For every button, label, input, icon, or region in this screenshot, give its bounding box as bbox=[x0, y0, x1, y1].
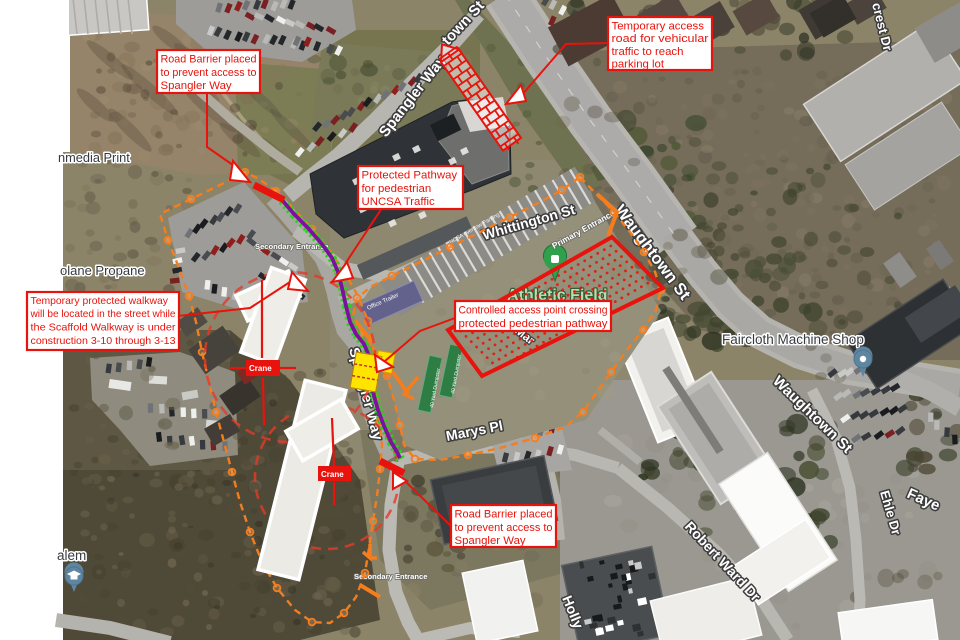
svg-text:Crane: Crane bbox=[321, 470, 344, 479]
svg-text:olane Propane: olane Propane bbox=[60, 263, 145, 278]
svg-text:Temporary access: Temporary access bbox=[612, 21, 705, 33]
svg-text:Crane: Crane bbox=[249, 364, 272, 373]
svg-text:will be located in the street: will be located in the street while bbox=[30, 309, 176, 320]
svg-text:the Scaffold Walkway is under: the Scaffold Walkway is under bbox=[31, 323, 177, 334]
svg-text:Road Barrier placed: Road Barrier placed bbox=[161, 54, 257, 66]
svg-text:road for vehicular: road for vehicular bbox=[612, 33, 709, 45]
svg-text:for pedestrian: for pedestrian bbox=[362, 183, 432, 195]
svg-text:traffic to reach: traffic to reach bbox=[612, 46, 684, 58]
svg-text:Spangler Way: Spangler Way bbox=[455, 535, 526, 547]
svg-text:Faircloth Machine Shop: Faircloth Machine Shop bbox=[722, 332, 864, 347]
svg-text:Temporary protected walkway: Temporary protected walkway bbox=[31, 296, 169, 307]
svg-text:Protected Pathway: Protected Pathway bbox=[362, 170, 458, 182]
svg-text:UNCSA Traffic: UNCSA Traffic bbox=[362, 196, 436, 208]
svg-text:protected pedestrian pathway: protected pedestrian pathway bbox=[459, 318, 608, 330]
svg-text:Controlled access point crossi: Controlled access point crossing bbox=[459, 305, 608, 317]
svg-text:construction 3-10 through 3-13: construction 3-10 through 3-13 bbox=[31, 336, 176, 347]
svg-text:nmedia Print: nmedia Print bbox=[58, 150, 130, 165]
svg-text:to prevent access to: to prevent access to bbox=[455, 522, 553, 534]
svg-text:alem: alem bbox=[57, 548, 86, 563]
svg-text:to prevent access to: to prevent access to bbox=[161, 67, 257, 79]
svg-text:Road Barrier placed: Road Barrier placed bbox=[455, 509, 553, 521]
svg-text:parking lot: parking lot bbox=[612, 58, 665, 70]
svg-text:Spangler Way: Spangler Way bbox=[161, 80, 232, 92]
